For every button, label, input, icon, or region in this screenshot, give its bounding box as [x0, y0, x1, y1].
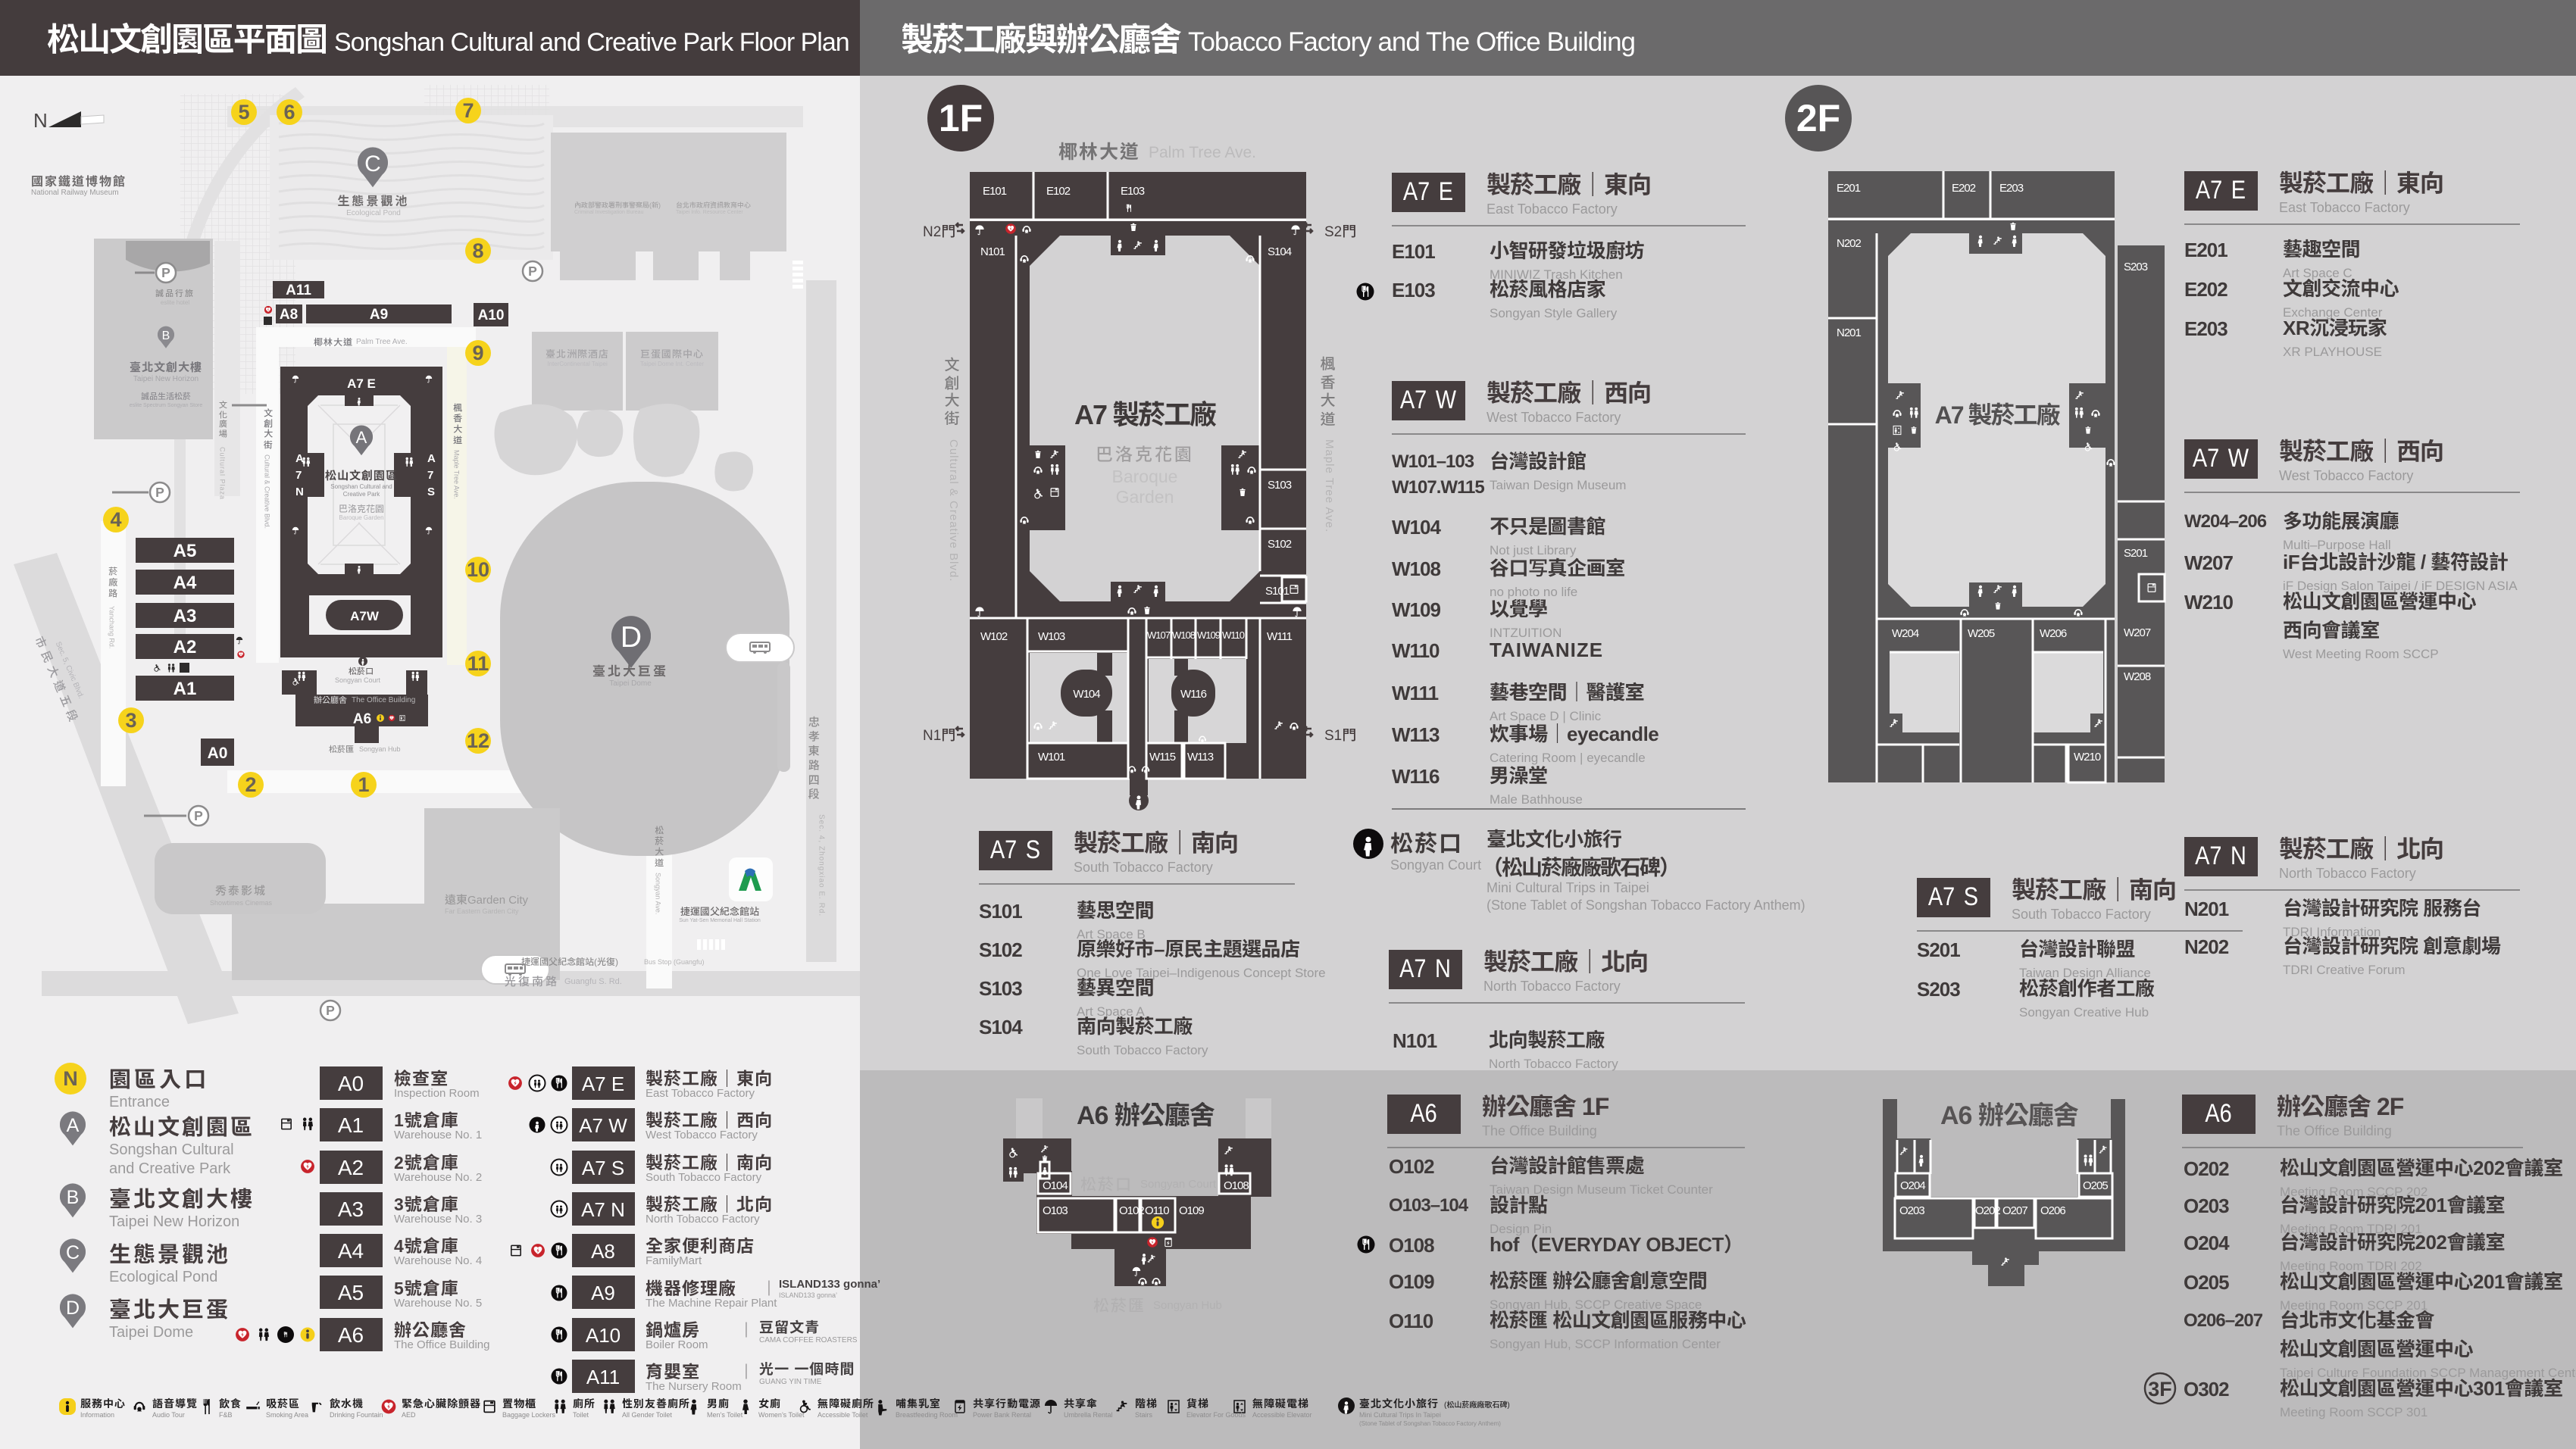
- svg-text:3F: 3F: [2148, 1378, 2172, 1401]
